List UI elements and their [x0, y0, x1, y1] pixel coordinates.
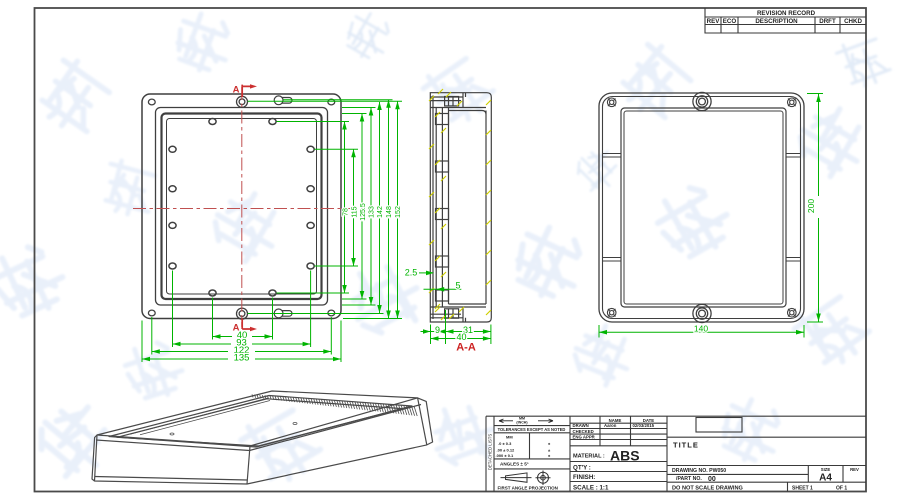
svg-text:DESCRIPTION: DESCRIPTION	[755, 18, 798, 25]
svg-text:5: 5	[455, 280, 460, 290]
svg-text:OF 1: OF 1	[836, 485, 847, 491]
svg-text:02/03/2015: 02/03/2015	[633, 423, 655, 428]
svg-text:Aaron: Aaron	[604, 423, 617, 428]
svg-text:78: 78	[343, 208, 350, 216]
svg-text:CHECKED: CHECKED	[573, 429, 594, 434]
svg-text:A-A: A-A	[456, 342, 476, 354]
svg-text:QT'Y :: QT'Y :	[573, 464, 591, 471]
svg-text:A: A	[233, 85, 240, 96]
svg-text:(INCH): (INCH)	[516, 421, 528, 425]
svg-text:DRFT: DRFT	[819, 18, 836, 25]
svg-text:142: 142	[377, 206, 384, 218]
svg-text:REVISION RECORD: REVISION RECORD	[757, 10, 816, 17]
svg-text:ENG APPR: ENG APPR	[573, 434, 596, 439]
svg-text:REV: REV	[850, 467, 859, 472]
svg-text:.0 ± 0.3: .0 ± 0.3	[498, 441, 512, 446]
svg-text:ANGLES ± 5°: ANGLES ± 5°	[500, 462, 529, 467]
svg-text:DETACHED LISTS: DETACHED LISTS	[488, 434, 493, 471]
svg-text:115: 115	[352, 206, 359, 217]
svg-text:.00 ± 0.12: .00 ± 0.12	[497, 448, 516, 453]
svg-text:FINISH:: FINISH:	[573, 474, 595, 481]
svg-text:.000 ± 0.1: .000 ± 0.1	[496, 453, 515, 458]
svg-text:/PART NO.: /PART NO.	[676, 476, 702, 482]
svg-text:133: 133	[369, 206, 376, 218]
svg-text:SHEET 1: SHEET 1	[792, 485, 813, 491]
svg-text:TOLERANCES EXCEPT AS NOTED: TOLERANCES EXCEPT AS NOTED	[498, 427, 566, 432]
svg-text:±: ±	[548, 448, 551, 453]
svg-text:MATERIAL :: MATERIAL :	[573, 454, 605, 460]
svg-text:±: ±	[548, 453, 551, 458]
svg-text:DO NOT SCALE DRAWING: DO NOT SCALE DRAWING	[672, 485, 743, 491]
svg-text:SCALE : 1:1: SCALE : 1:1	[573, 485, 609, 492]
svg-text:A4: A4	[819, 473, 832, 484]
svg-text:REV: REV	[707, 18, 721, 25]
svg-text:ECO: ECO	[723, 18, 737, 25]
svg-text:DRAWING NO. PW050: DRAWING NO. PW050	[672, 468, 726, 474]
svg-text:ABS: ABS	[610, 448, 640, 464]
svg-text:200: 200	[806, 199, 816, 213]
svg-text:MM: MM	[506, 435, 513, 440]
svg-text:2.5: 2.5	[405, 268, 418, 278]
svg-text:SIZE: SIZE	[821, 467, 831, 472]
svg-text:TITLE: TITLE	[673, 441, 699, 450]
svg-text:148: 148	[386, 206, 393, 218]
svg-text:125.5: 125.5	[360, 203, 367, 221]
svg-text:152: 152	[395, 206, 402, 218]
svg-text:9: 9	[435, 325, 440, 335]
svg-text:DATE: DATE	[643, 418, 655, 423]
svg-text:CHKD: CHKD	[844, 18, 862, 25]
svg-text:FIRST ANGLE PROJECTION: FIRST ANGLE PROJECTION	[498, 485, 558, 490]
svg-text:±: ±	[548, 441, 551, 446]
svg-text:DRAWN: DRAWN	[573, 423, 589, 428]
svg-text:00: 00	[708, 476, 716, 483]
svg-text:NAME: NAME	[609, 418, 622, 423]
svg-text:135: 135	[234, 353, 250, 364]
svg-text:140: 140	[694, 324, 708, 334]
